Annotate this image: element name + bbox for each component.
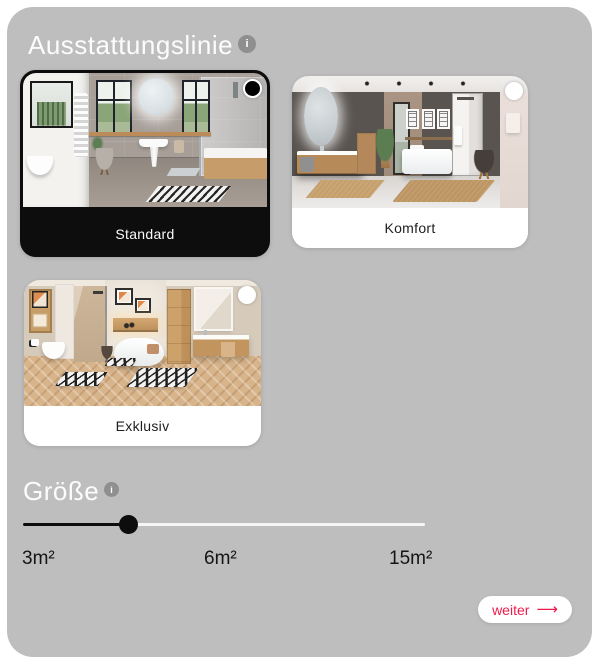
slider-label-min: 3m² [22,548,55,570]
oval-mirror [304,87,338,146]
card-exklusiv[interactable]: Exklusiv [24,280,261,446]
tub-towel [147,344,159,354]
framed-picture [115,288,133,306]
vanity-towel [300,157,314,173]
potted-plant [373,129,397,169]
size-slider[interactable] [23,515,425,534]
wall-shelf [405,137,452,140]
arrow-right-icon: ⟶ [536,602,558,617]
unselected-indicator-icon [238,286,256,304]
unselected-indicator-icon [505,82,523,100]
slider-label-max: 15m² [389,548,432,570]
patterned-rug [55,372,107,386]
tall-wood-cabinet [167,289,191,365]
selected-indicator-icon [243,79,262,98]
right-wall [500,92,528,208]
shower-fixture [457,97,474,100]
hand-towel [174,140,184,153]
section-title-ausstattungslinie: Ausstattungslinie [28,30,233,61]
striped-rug [146,186,232,202]
card-label-standard: Standard [23,213,267,254]
chair-with-fur [470,150,498,179]
stool-with-towels [93,148,116,175]
window-right [182,80,210,135]
towel-radiator [74,93,87,157]
patterned-rug [105,358,138,366]
card-standard[interactable]: Standard [20,70,270,257]
ceiling-spotlights [351,80,481,87]
wall-art [422,109,435,129]
info-icon-groesse[interactable]: i [104,482,119,497]
wood-shelf [89,132,211,136]
bathroom-photo-komfort [292,76,528,208]
card-label-exklusiv: Exklusiv [24,406,261,446]
wall-art [32,313,47,328]
framed-picture [135,298,150,313]
wall-art [406,109,419,129]
window-left [96,80,132,135]
washbasin [139,139,168,148]
lit-wall-niche [113,318,158,332]
card-komfort[interactable]: Komfort [292,76,528,248]
round-mirror [138,78,175,115]
shower-fixture [233,82,238,98]
slider-label-mid: 6m² [204,548,237,570]
wall-towel [506,113,520,133]
section-title-groesse: Größe [23,476,99,507]
bath-mat [167,168,201,176]
bathtub [204,148,267,179]
weiter-button-label: weiter [492,602,529,618]
bathroom-photo-standard [23,73,267,207]
info-icon-ausstattungslinie[interactable]: i [238,35,256,53]
wall-art [32,291,47,307]
freestanding-bathtub [402,149,453,174]
vanity-towel [221,342,235,357]
shower-towel [454,126,462,144]
vanity-mirror [196,289,232,329]
slider-fill [23,523,128,526]
weiter-button[interactable]: weiter ⟶ [478,596,572,623]
configurator-page: Ausstattungslinie i [0,0,600,663]
shower-fixture [93,291,104,294]
card-label-komfort: Komfort [292,208,528,248]
plant-picture [30,81,73,128]
wall-art [437,109,450,129]
toilet-paper-holder [31,339,39,345]
slider-thumb[interactable] [119,515,138,534]
bathroom-photo-exklusiv [24,280,261,406]
configurator-panel: Ausstattungslinie i [7,7,592,657]
